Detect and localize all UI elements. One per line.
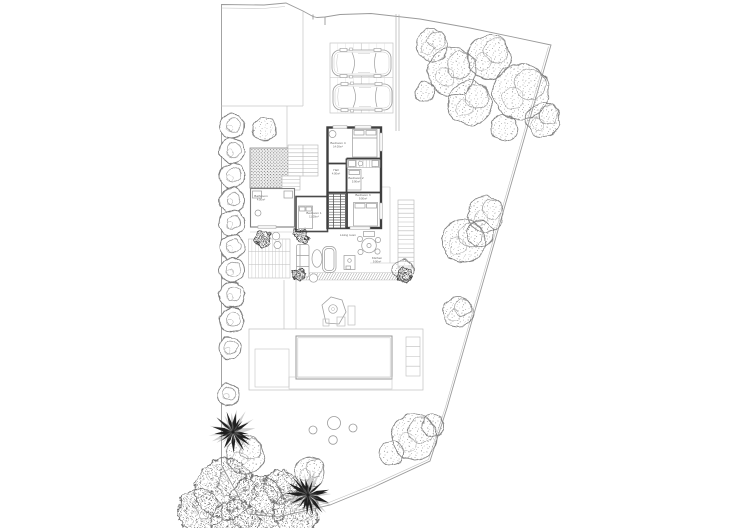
planter-pot	[272, 232, 280, 240]
room-area: 9.00m²	[359, 196, 367, 200]
tree	[491, 115, 517, 141]
dark-bush	[294, 229, 308, 243]
hedge-shrub	[220, 258, 245, 283]
wood-deck	[249, 239, 291, 278]
daybed-cushion	[325, 249, 335, 271]
driveway-edge	[396, 14, 399, 131]
swimming-pool	[296, 336, 392, 379]
dining-chair	[357, 236, 362, 241]
dining-chair	[375, 249, 380, 254]
pillow	[366, 131, 376, 136]
dark-bush	[255, 231, 271, 247]
stepping-stone	[329, 436, 338, 445]
car-wheel	[374, 75, 381, 78]
garden-bench	[348, 306, 355, 325]
deck-outline	[249, 239, 291, 278]
pillow	[367, 204, 377, 209]
car-body	[333, 84, 392, 110]
room-area: 5.90m²	[352, 179, 360, 183]
hedge-shrub	[220, 139, 245, 164]
pillow	[355, 204, 365, 209]
pergola	[322, 297, 355, 326]
sideboard	[364, 232, 375, 237]
tree	[422, 415, 444, 437]
dining-chair	[358, 249, 363, 254]
lounge-chair	[309, 274, 317, 282]
interior-staircase	[329, 194, 346, 228]
hedge-shrub	[220, 235, 245, 260]
dark-bush-body	[255, 231, 271, 247]
pillow	[354, 131, 364, 136]
gate-posts	[313, 15, 325, 26]
dark-bush	[397, 268, 411, 282]
room-area: 14.00m²	[333, 144, 343, 148]
stepping-stone	[328, 417, 341, 430]
tree-canopy	[422, 415, 444, 437]
car-wheel	[340, 75, 347, 78]
exterior-stairs-small	[282, 176, 300, 190]
car-mirror	[351, 82, 354, 84]
car-body	[332, 50, 391, 76]
cooktop	[346, 266, 351, 269]
stepping-stone	[349, 424, 357, 432]
stepping-stones	[309, 417, 357, 445]
pool-side-platform	[255, 349, 289, 387]
room-name: Bedroom 4	[330, 141, 345, 145]
room-name: Living room	[340, 233, 356, 237]
planter-pot	[274, 241, 281, 248]
dark-bush-body	[294, 229, 308, 243]
car-wheel	[375, 109, 382, 112]
room-area: 4.00m²	[257, 197, 265, 201]
room-area: 9.00m²	[373, 259, 381, 263]
pool-step-lines	[406, 347, 420, 367]
hedge-shrub	[220, 211, 245, 236]
tree-canopy	[491, 115, 517, 141]
pool-area	[249, 329, 423, 390]
living-terrace	[297, 232, 381, 283]
pillow	[300, 207, 306, 211]
tree	[467, 221, 493, 247]
toilet	[372, 161, 379, 167]
site-plan-page: Bedroom 414.00m²Hall4.00m²Bedroom 25.90m…	[0, 0, 756, 528]
dining-table-center	[367, 243, 371, 247]
room-name: Bedroom 1	[306, 211, 321, 215]
coffee-table	[312, 250, 322, 268]
exterior-stairs-upper	[288, 145, 318, 176]
hedge-shrub	[220, 114, 245, 139]
car-mirror	[350, 76, 353, 78]
hedge-shrub	[220, 308, 244, 332]
car-mirror	[350, 48, 353, 50]
tree-canopy	[380, 441, 404, 465]
sink	[358, 161, 363, 166]
site-plan-drawing: Bedroom 414.00m²Hall4.00m²Bedroom 25.90m…	[0, 0, 756, 528]
tree	[380, 441, 404, 465]
room-name: Bedroom 3	[355, 193, 370, 197]
tree-canopy	[253, 117, 277, 141]
room-name: Hall	[333, 168, 339, 172]
dark-bush	[293, 269, 305, 281]
garden-walkway	[284, 280, 296, 329]
car-wheel	[340, 48, 347, 51]
car-mirror	[351, 110, 354, 112]
room-label-kitchen: Kitchen9.00m²	[372, 256, 383, 263]
tree	[526, 103, 560, 137]
hedge-shrub	[217, 384, 239, 406]
exterior-stairs-right	[398, 200, 414, 268]
stool	[255, 210, 261, 216]
stepping-stone	[309, 426, 317, 434]
palm-trunk	[306, 493, 309, 496]
hedge-shrub	[220, 283, 245, 308]
boundary-top-double-line	[222, 7, 286, 9]
hedge-shrub	[220, 188, 245, 213]
hedge-shrub	[220, 164, 245, 189]
car-wheel	[341, 82, 348, 85]
dining-chair	[375, 237, 380, 242]
palm-trunk	[231, 430, 234, 433]
shower	[349, 161, 356, 167]
room-label-living-room: Living room	[340, 233, 356, 237]
pergola-roof	[322, 297, 346, 324]
island-sink	[348, 259, 352, 263]
tree	[443, 297, 473, 327]
room-name: Kitchen	[372, 256, 383, 260]
tree	[415, 82, 435, 102]
dark-bush-body	[293, 269, 305, 281]
car-2	[333, 82, 392, 112]
tree	[448, 81, 492, 125]
car-1	[332, 48, 391, 78]
tree	[253, 117, 277, 141]
dark-bush-body	[397, 268, 411, 282]
armchair	[329, 131, 336, 138]
tree-canopy	[467, 221, 493, 247]
room-area: 11.00m²	[309, 214, 319, 218]
stairs-outline	[398, 200, 414, 268]
room-name: Bedroom 2	[348, 176, 363, 180]
car-wheel	[341, 109, 348, 112]
room-name: Bathroom	[254, 194, 268, 198]
room-area: 4.00m²	[332, 171, 340, 175]
tree-canopy	[415, 82, 435, 102]
pillow	[349, 171, 360, 175]
vanity	[284, 191, 293, 198]
car-wheel	[374, 48, 381, 51]
vehicles	[332, 48, 392, 112]
car-wheel	[375, 82, 382, 85]
hedge-shrub	[219, 337, 241, 359]
